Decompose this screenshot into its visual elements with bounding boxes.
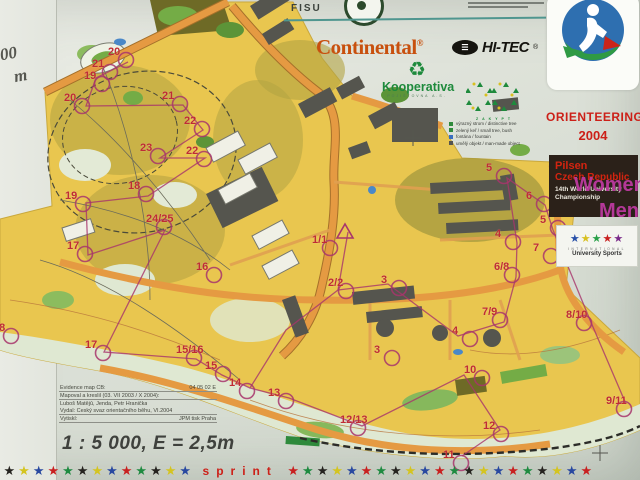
- credits-row: Vydal: Český svaz orientačního běhu, VI.…: [59, 407, 217, 415]
- event-year: 2004: [546, 128, 640, 143]
- banner-star-icon: ★: [287, 464, 299, 477]
- credits-label: Vydal: Český svaz orientačního běhu, VI.…: [60, 408, 172, 414]
- banner-star-icon: ★: [551, 464, 563, 477]
- credits-value: JPM tisk Praha: [179, 416, 216, 422]
- event-city: Pilsen: [555, 160, 634, 172]
- legend-text: výrazný strom / distinctive tree: [456, 121, 517, 126]
- banner-star-icon: ★: [375, 464, 387, 477]
- banner-star-icon: ★: [478, 464, 490, 477]
- banner-star-icon: ★: [493, 464, 505, 477]
- banner-star-icon: ★: [390, 464, 402, 477]
- kooperativa-triangle-icon: ♻: [382, 60, 452, 80]
- banner-star-icon: ★: [331, 464, 343, 477]
- fisu-star-icon: ★: [581, 233, 592, 245]
- banner-star-icon: ★: [581, 464, 593, 477]
- banner-star-icon: ★: [47, 464, 59, 477]
- fisu-star-icon: ★: [592, 233, 603, 245]
- partner-emblem-logo: ZAKYPT: [466, 80, 524, 121]
- banner-star-icon: ★: [77, 464, 89, 477]
- credits-label: Luboš Matějů, Jenda, Petr Hranička: [60, 401, 147, 407]
- legend-symbol-icon: [449, 128, 453, 132]
- banner-star-icon: ★: [150, 464, 162, 477]
- credits-row: Mapoval a kreslil (03. VII 2003 / X 2004…: [59, 392, 217, 400]
- credits-row: Evidence map ČB:04 05 02 E: [59, 384, 217, 392]
- banner-star-icon: ★: [4, 464, 16, 477]
- hitec-oval-icon: ☰: [452, 40, 478, 55]
- credits-row: Vytiskl:JPM tisk Praha: [59, 415, 217, 423]
- fisu-star-icon: ★: [570, 233, 581, 245]
- category-men-label: Men: [599, 200, 639, 223]
- banner-star-icon: ★: [106, 464, 118, 477]
- event-title: ORIENTEERING: [546, 110, 640, 124]
- legend-text: fontána / fountain: [456, 134, 491, 139]
- legend-item: fontána / fountain: [449, 134, 549, 139]
- credits-label: Vytiskl:: [60, 416, 77, 422]
- legend-text: zelený keř / small tree, bush: [456, 128, 512, 133]
- credits-label: Mapoval a kreslil (03. VII 2003 / X 2004…: [60, 393, 159, 399]
- triangle-circles-icon: [466, 80, 524, 112]
- map-poster-photo: 00m: [0, 0, 640, 480]
- banner-star-icon: ★: [537, 464, 549, 477]
- fisu-university-sports-label: University Sports: [557, 251, 637, 257]
- banner-star-icon: ★: [434, 464, 446, 477]
- banner-star-icon: ★: [346, 464, 358, 477]
- banner-star-icon: ★: [449, 464, 461, 477]
- banner-star-icon: ★: [463, 464, 475, 477]
- category-women-label: Women: [574, 174, 640, 197]
- legend-symbol-icon: [449, 122, 453, 126]
- banner-star-icon: ★: [522, 464, 534, 477]
- banner-star-icon: ★: [507, 464, 519, 477]
- credits-row: Luboš Matějů, Jenda, Petr Hranička: [59, 400, 217, 407]
- banner-star-icon: ★: [302, 464, 314, 477]
- runner-emblem-icon: [547, 0, 639, 90]
- kooperativa-logo: ♻ Kooperativa POJIŠŤOVNA A.S.: [382, 60, 452, 98]
- credits-label: Evidence map ČB:: [60, 385, 106, 391]
- banner-star-icon: ★: [361, 464, 373, 477]
- credits-value: 04 05 02 E: [189, 385, 216, 391]
- fisu-star-icon: ★: [602, 233, 613, 245]
- banner-star-icon: ★: [165, 464, 177, 477]
- legend-item: výrazný strom / distinctive tree: [449, 121, 549, 126]
- banner-star-icon: ★: [18, 464, 30, 477]
- banner-star-icon: ★: [317, 464, 329, 477]
- banner-star-icon: ★: [179, 464, 191, 477]
- map-legend: výrazný strom / distinctive treezelený k…: [449, 121, 549, 147]
- legend-text: umělý objekt / man-made object: [456, 141, 520, 146]
- legend-symbol-icon: [449, 135, 453, 139]
- banner-star-icon: ★: [33, 464, 45, 477]
- sprint-label: sprint: [203, 464, 278, 478]
- banner-star-icon: ★: [121, 464, 133, 477]
- university-sports-logo: ★★★★★ INTERNATIONAL University Sports: [556, 225, 638, 267]
- legend-item: umělý objekt / man-made object: [449, 141, 549, 146]
- fisu-stars-icon: ★★★★★: [557, 229, 637, 247]
- banner-star-icon: ★: [91, 464, 103, 477]
- legend-item: zelený keř / small tree, bush: [449, 128, 549, 133]
- banner-star-icon: ★: [419, 464, 431, 477]
- continental-logo: Continental®: [316, 35, 423, 60]
- fine-print-smudge: [468, 2, 544, 10]
- hitec-logo: ☰ HI-TEC®: [452, 39, 538, 56]
- orienteering-2004-emblem: [547, 0, 639, 90]
- fisu-wordmark: FISU: [291, 3, 322, 14]
- banner-star-icon: ★: [405, 464, 417, 477]
- banner-star-icon: ★: [62, 464, 74, 477]
- fisu-star-icon: ★: [613, 233, 624, 245]
- sprint-star-banner: ★★★★★★★★★★★★★sprint★★★★★★★★★★★★★★★★★★★★★: [0, 461, 640, 480]
- banner-star-icon: ★: [566, 464, 578, 477]
- map-credits-box: Evidence map ČB:04 05 02 EMapoval a kres…: [59, 384, 217, 423]
- legend-symbol-icon: [449, 141, 453, 145]
- map-scale-label: 1 : 5 000, E = 2,5m: [62, 433, 235, 455]
- banner-star-icon: ★: [135, 464, 147, 477]
